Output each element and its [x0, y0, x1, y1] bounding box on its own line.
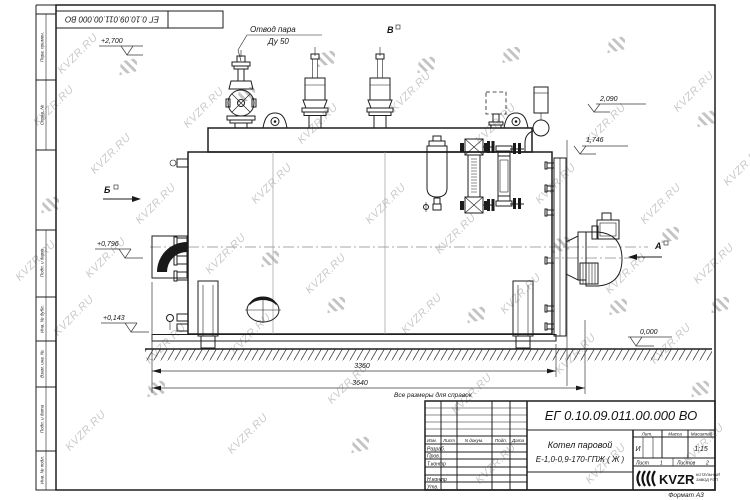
- tb-sheet-value: 1: [660, 461, 663, 467]
- safety-valve-1: [302, 47, 328, 128]
- strip-label-sprav-no: Справ. №: [40, 105, 45, 126]
- title-block: Изм. Лист N докум. Подп. Дата Разраб. Пр…: [425, 401, 720, 499]
- tb-col-podp: Подп.: [495, 438, 507, 443]
- tb-sheet-label: Лист: [635, 461, 649, 467]
- view-label-v: В: [387, 25, 400, 35]
- dim-3640-text: 3640: [352, 380, 368, 387]
- strip-label-inv-podl: Инв. № подл.: [40, 456, 45, 484]
- top-stamp: ЕГ 0.10.09.011.00.000 ВО: [56, 11, 223, 28]
- tb-col-list: Лист: [442, 438, 455, 443]
- elevation-0000: 0,000: [628, 329, 672, 346]
- left-frame-strip: Перв. примен. Справ. № Подп. и дата Инв.…: [36, 14, 56, 490]
- elevation-1746: 1,746: [574, 137, 628, 154]
- lifting-lug-left: [263, 113, 287, 128]
- left-end-equipment: [152, 159, 188, 331]
- boiler-assembly: [145, 47, 712, 361]
- strip-label-inv-dubl: Инв. № дубл.: [40, 305, 45, 333]
- tb-lit-value: И: [635, 446, 641, 453]
- svg-text:+0,796: +0,796: [97, 241, 119, 248]
- support-skid: [152, 281, 556, 348]
- steam-outlet-label-line1: Отвод пара: [250, 25, 296, 34]
- tb-company-line1: КОТЕЛЬНЫЙ: [696, 473, 720, 477]
- pressure-gauge: [525, 87, 549, 152]
- tb-company-line2: ЗАВОД РЭП: [696, 478, 718, 482]
- dim-3360: 3360: [152, 363, 556, 373]
- strip-label-vzam-inv: Взам. инв. №: [40, 350, 45, 378]
- lifting-lug-right: [504, 113, 528, 128]
- burner: [548, 213, 645, 286]
- svg-text:В: В: [387, 25, 394, 35]
- view-label-a: А: [628, 241, 668, 260]
- hidden-component-outline: [486, 92, 506, 128]
- tb-scale-header: Масштаб: [691, 432, 713, 437]
- tb-format: Формат А3: [668, 492, 704, 499]
- tb-product-model: Е-1,0-0,9-170-ГПЖ ( Ж ): [536, 455, 625, 464]
- ground-line: [145, 349, 712, 361]
- tb-row-nkontr: Н.контр: [427, 477, 447, 483]
- water-gauge-glass: [460, 139, 488, 213]
- svg-text:+0,143: +0,143: [103, 315, 125, 322]
- dim-3640: 3640: [152, 380, 585, 390]
- svg-text:0,000: 0,000: [640, 329, 658, 336]
- elevation-2090: 2,090: [588, 96, 646, 112]
- boiler-shell: [188, 128, 552, 334]
- callout-steam-outlet: Отвод пара Ду 50: [238, 25, 322, 61]
- tb-sheets-value: 2: [705, 461, 709, 467]
- elevation-0143: +0,143: [101, 315, 149, 332]
- water-level-column: [424, 136, 448, 212]
- tb-mass-header: Масса: [668, 432, 682, 437]
- tb-col-ndoc: N докум.: [465, 438, 484, 443]
- svg-text:1,746: 1,746: [586, 137, 604, 144]
- boiler-drawing-svg: Перв. примен. Справ. № Подп. и дата Инв.…: [0, 0, 750, 500]
- tb-product-name: Котел паровой: [548, 440, 613, 450]
- strip-label-podp-data-2: Подп. и дата: [40, 404, 45, 433]
- kvzr-logo: KVZR КОТЕЛЬНЫЙ ЗАВОД РЭП: [638, 471, 721, 487]
- tb-lit-header: Лит.: [641, 432, 653, 437]
- strip-label-perv-primen: Перв. примен.: [40, 32, 45, 62]
- elevation-2700: +2,700: [99, 38, 143, 55]
- tb-row-utv: Утв.: [427, 485, 438, 491]
- svg-text:Б: Б: [104, 185, 111, 195]
- tb-col-data: Дата: [511, 438, 525, 443]
- svg-text:+2,700: +2,700: [101, 38, 123, 45]
- elevation-0796: +0,796: [95, 241, 143, 258]
- tb-scale-value: 1:15: [694, 446, 708, 453]
- safety-valve-2: [367, 47, 393, 128]
- dim-3360-text: 3360: [354, 363, 370, 370]
- view-label-b: Б: [103, 185, 141, 202]
- tb-doc-number: ЕГ 0.10.09.011.00.000 ВО: [545, 408, 698, 423]
- svg-text:2,090: 2,090: [599, 96, 618, 103]
- top-stamp-doc-number: ЕГ 0.10.09.011.00.000 ВО: [65, 15, 159, 24]
- manhole: [245, 297, 281, 323]
- strip-label-podp-data-1: Подп. и дата: [40, 248, 45, 277]
- steam-outlet-label-line2: Ду 50: [267, 37, 289, 46]
- tb-row-tkontr: Т.контр: [427, 462, 446, 468]
- tb-row-razrab: Разраб.: [427, 447, 445, 453]
- svg-text:А: А: [654, 241, 662, 251]
- drawing-sheet: KVZR.RUKVZR.RUKVZR.RUKVZR.RUKVZR.RUKVZR.…: [0, 0, 750, 500]
- tb-row-prov: Пров.: [427, 454, 440, 460]
- tb-sheets-label: Листов: [676, 461, 696, 467]
- reference-note: Все размеры для справок: [394, 391, 473, 399]
- kvzr-logo-text: KVZR: [659, 472, 695, 487]
- steam-outlet-valve: [226, 50, 256, 128]
- tb-col-izm: Изм.: [427, 438, 437, 443]
